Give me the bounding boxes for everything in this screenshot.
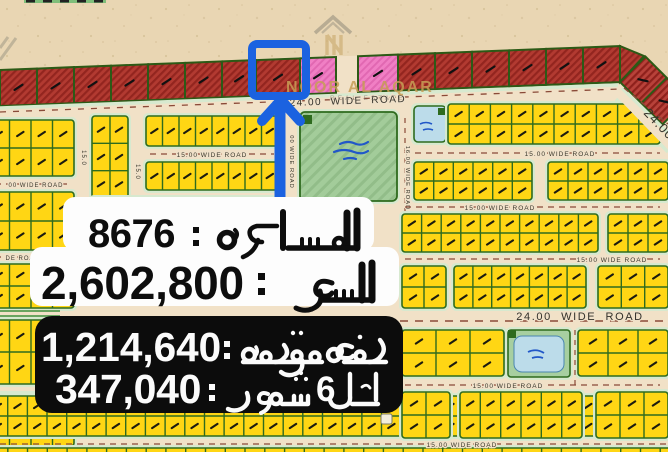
- svg-text:2,602,800: 2,602,800: [41, 257, 244, 309]
- svg-text:15.00 WIDE ROAD: 15.00 WIDE ROAD: [577, 257, 648, 264]
- svg-text:15.0: 15.0: [134, 164, 140, 180]
- svg-text:347,040: 347,040: [55, 366, 201, 412]
- svg-text:15.00 WIDE ROAD: 15.00 WIDE ROAD: [473, 383, 544, 390]
- svg-text:15.00 WIDE ROAD: 15.00 WIDE ROAD: [427, 442, 498, 449]
- svg-text:15.0: 15.0: [80, 150, 86, 166]
- svg-text:15.00 WIDE ROAD: 15.00 WIDE ROAD: [525, 151, 596, 158]
- svg-text:24.00 WIDE ROAD: 24.00 WIDE ROAD: [516, 311, 643, 323]
- svg-text:REAL ESTATE: REAL ESTATE: [330, 95, 406, 102]
- svg-text:00 WIDE ROAD: 00 WIDE ROAD: [288, 135, 294, 189]
- svg-text:16.00 WIDE ROAD: 16.00 WIDE ROAD: [404, 146, 410, 211]
- svg-text:15.00 WIDE ROAD: 15.00 WIDE ROAD: [465, 205, 536, 212]
- svg-text:15.00 WIDE ROAD: 15.00 WIDE ROAD: [177, 152, 248, 159]
- svg-text:00 WIDE ROAD: 00 WIDE ROAD: [8, 183, 63, 189]
- svg-text:8676: 8676: [88, 212, 175, 256]
- svg-text:1,214,640: 1,214,640: [41, 324, 221, 370]
